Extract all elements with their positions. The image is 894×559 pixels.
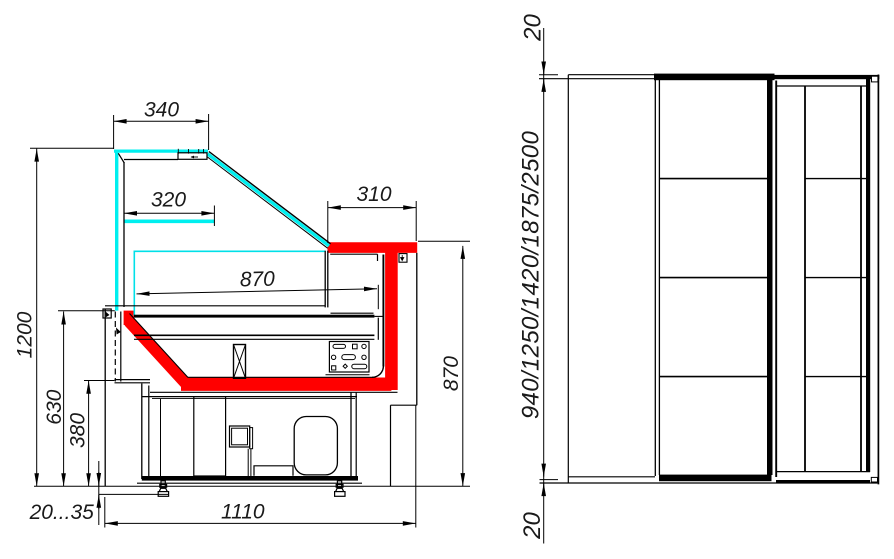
svg-text:630: 630 (43, 389, 66, 424)
svg-text:20: 20 (519, 512, 546, 540)
svg-text:870: 870 (240, 268, 276, 292)
svg-text:310: 310 (356, 183, 391, 206)
svg-text:870: 870 (440, 356, 463, 391)
svg-text:340: 340 (144, 99, 179, 122)
svg-text:1200: 1200 (14, 311, 37, 358)
svg-text:1110: 1110 (221, 501, 265, 524)
svg-text:20...35: 20...35 (29, 501, 95, 524)
svg-text:20: 20 (520, 14, 547, 42)
svg-text:320: 320 (151, 189, 186, 212)
svg-text:380: 380 (66, 413, 89, 448)
svg-text:940/1250/1420/1875/2500: 940/1250/1420/1875/2500 (518, 131, 545, 420)
